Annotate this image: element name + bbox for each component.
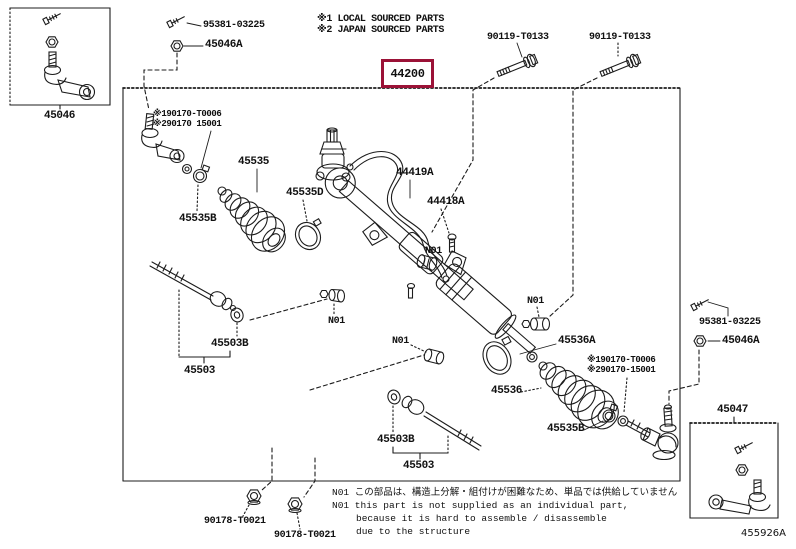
- label-lock-nut-1: 90178-T0021: [204, 516, 266, 527]
- figure-code: 455926A: [741, 528, 786, 539]
- label-grease-right-1: ※190170-T0006: [587, 355, 655, 365]
- label-n01-3: N01: [392, 336, 409, 347]
- label-rod-center: 45503: [403, 460, 434, 472]
- clamp-45535d-drawing: [291, 200, 326, 254]
- boot-left-drawing: [218, 169, 292, 258]
- union-bolt-44418a: [441, 209, 456, 252]
- nut-icon: [694, 336, 706, 346]
- label-washer-center: 45503B: [377, 434, 414, 446]
- label-lock-nut-2: 90178-T0021: [274, 530, 336, 541]
- nut-icon: [736, 465, 748, 475]
- label-bolt-right: 90119-T0133: [589, 32, 651, 43]
- label-n01-4: N01: [527, 296, 544, 307]
- nut-icon: [247, 490, 261, 505]
- bushing-n01-4: [522, 307, 550, 330]
- tie-rod-end-drawing: [45, 52, 95, 100]
- inset-box-45046: [10, 8, 110, 109]
- tie-rod-end-drawing: [709, 480, 770, 514]
- screw-icon: [167, 14, 186, 28]
- label-boot-left: 45535: [238, 156, 269, 168]
- ring-and-clamp-left: [183, 131, 212, 211]
- rack-housing-drawing: [312, 154, 550, 370]
- selected-part-callout[interactable]: 44200: [381, 59, 434, 88]
- bushing-n01-2: [320, 290, 345, 316]
- label-washer-left: 45503B: [211, 338, 248, 350]
- screw-icon: [43, 11, 62, 25]
- label-n01-1: N01: [425, 246, 442, 257]
- inset-box-45047: [690, 417, 778, 518]
- label-n01-2: N01: [328, 316, 345, 327]
- label-inset-45046: 45046: [44, 110, 75, 122]
- label-clamp-45536a: 45536A: [558, 335, 595, 347]
- screw-icon: [691, 297, 710, 311]
- label-screw-top-left: 95381-03225: [203, 20, 265, 31]
- label-nut-right: 45046A: [722, 335, 759, 347]
- label-grease-left-2: ※290170 15001: [153, 119, 221, 129]
- pinion-input-drawing: [316, 128, 350, 181]
- nut-icon: [171, 41, 183, 51]
- parts-diagram: 44200 ※1 LOCAL SOURCED PARTS ※2 JAPAN SO…: [0, 0, 796, 549]
- label-clamp-left-b: 45535B: [179, 213, 216, 225]
- label-bolt-left: 90119-T0133: [487, 32, 549, 43]
- screw-icon: [735, 440, 754, 454]
- label-grease-right-2: ※290170-15001: [587, 365, 655, 375]
- label-tube-44419a: 44419A: [396, 167, 433, 179]
- legend-japan-sourced: ※2 JAPAN SOURCED PARTS: [317, 24, 444, 36]
- hardware-top-left: [144, 14, 203, 110]
- note-n01-english-2: because it is hard to assemble / disasse…: [356, 513, 607, 524]
- label-clamp-left-d: 45535D: [286, 187, 323, 199]
- note-n01-english-3: due to the structure: [356, 526, 470, 537]
- inner-rod-center-drawing: [386, 388, 481, 459]
- note-n01-japanese: N01 この部品は、構造上分解・組付けが困難なため、単品では供給していません: [332, 484, 677, 498]
- label-union-44418a: 44418A: [427, 196, 464, 208]
- main-assembly-box: [123, 84, 680, 481]
- label-nut-top-left: 45046A: [205, 39, 242, 51]
- nut-icon: [46, 37, 58, 47]
- label-grease-left-1: ※190170-T0006: [153, 109, 221, 119]
- nut-icon: [288, 498, 302, 513]
- label-inset-45047: 45047: [717, 404, 748, 416]
- bushing-n01-3: [411, 345, 445, 365]
- label-clamp-right-b: 45535B: [547, 423, 584, 435]
- label-screw-right: 95381-03225: [699, 317, 761, 328]
- bolt-90119-right: [549, 43, 641, 317]
- note-n01-english-1: N01 this part is not supplied as an indi…: [332, 500, 628, 511]
- label-rod-left: 45503: [184, 365, 215, 377]
- label-boot-right: 45536: [491, 385, 522, 397]
- clamp-45536a-drawing: [478, 336, 556, 379]
